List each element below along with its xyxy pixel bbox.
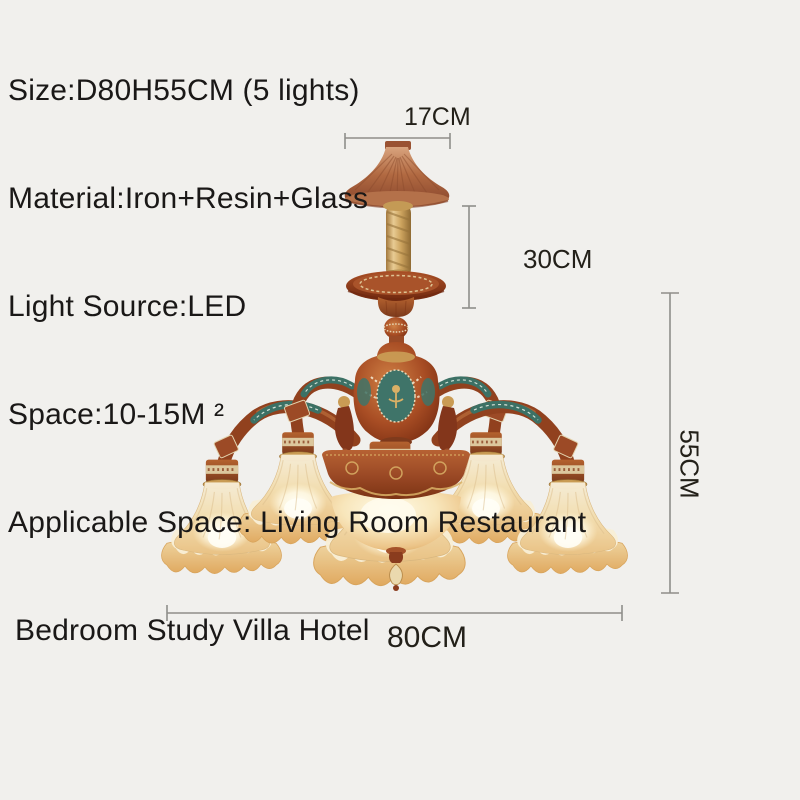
product-image: Size:D80H55CM (5 lights) Material:Iron+R… xyxy=(0,0,800,800)
spec-line-applicable-space-2: Bedroom Study Villa Hotel xyxy=(15,613,586,649)
spec-line-light-source: Light Source:LED xyxy=(8,289,586,325)
spec-line-material: Material:Iron+Resin+Glass xyxy=(8,181,586,217)
dimension-label-body-height: 55CM xyxy=(674,429,705,498)
product-specs: Size:D80H55CM (5 lights) Material:Iron+R… xyxy=(8,1,586,721)
spec-line-applicable-space: Applicable Space: Living Room Restaurant xyxy=(8,505,586,541)
spec-line-size: Size:D80H55CM (5 lights) xyxy=(8,73,586,109)
spec-line-space: Space:10-15M ² xyxy=(8,397,586,433)
